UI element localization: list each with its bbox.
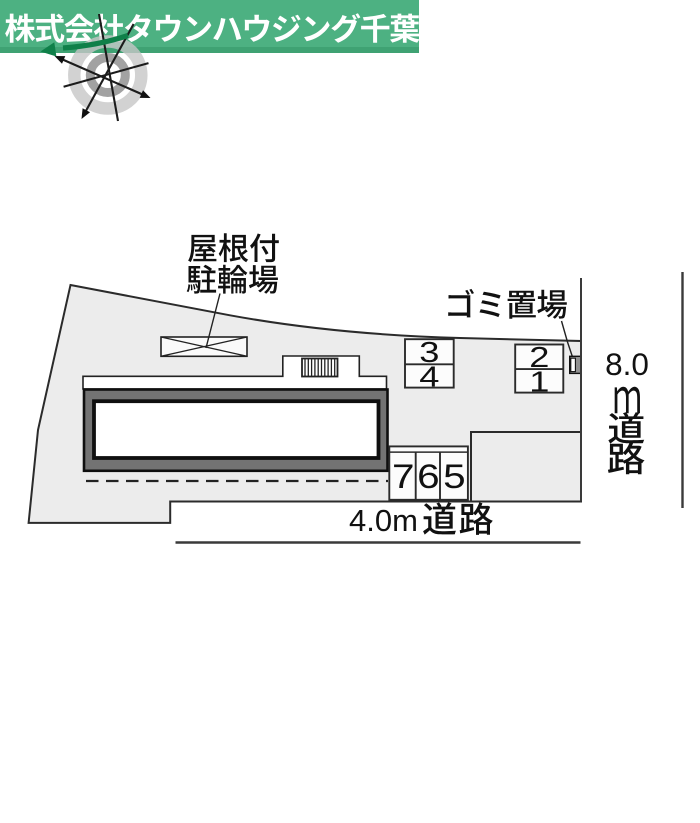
svg-text:6: 6 [417, 457, 440, 495]
svg-text:4: 4 [419, 360, 439, 393]
svg-text:5: 5 [443, 457, 466, 495]
svg-text:4.0m: 4.0m [349, 503, 418, 538]
svg-text:8.0: 8.0 [605, 346, 649, 382]
svg-text:1: 1 [529, 365, 549, 398]
svg-text:7: 7 [392, 457, 415, 495]
